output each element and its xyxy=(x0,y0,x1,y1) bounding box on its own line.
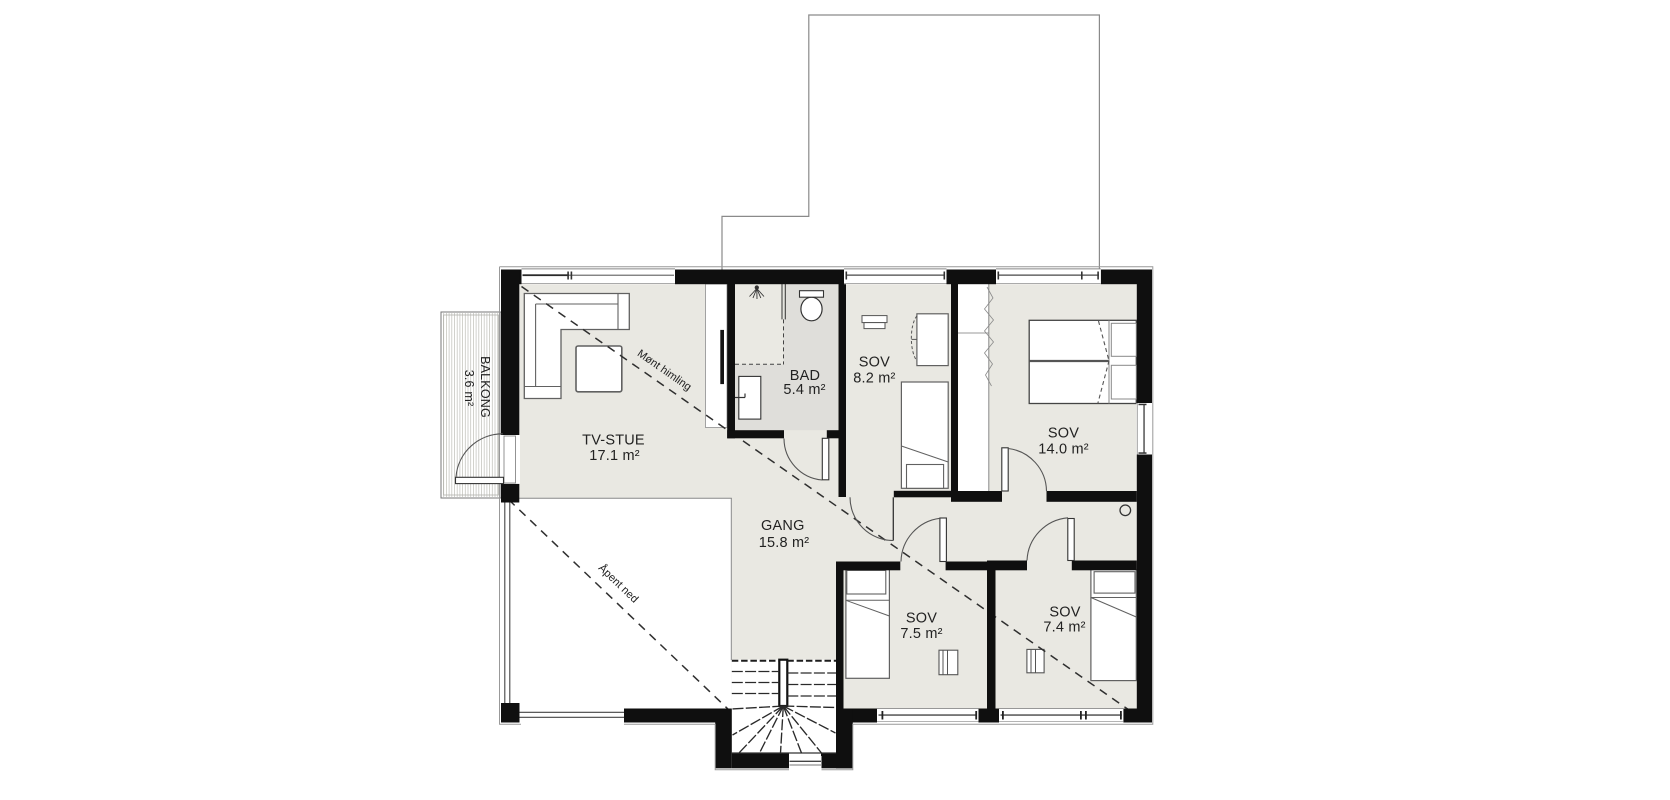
svg-text:8.2 m²: 8.2 m² xyxy=(853,371,895,387)
svg-text:7.4 m²: 7.4 m² xyxy=(1043,620,1085,636)
svg-text:5.4 m²: 5.4 m² xyxy=(783,382,825,398)
svg-text:SOV: SOV xyxy=(1049,605,1080,621)
svg-text:17.1 m²: 17.1 m² xyxy=(589,448,640,464)
svg-text:SOV: SOV xyxy=(906,611,937,627)
svg-text:GANG: GANG xyxy=(761,518,805,534)
svg-text:TV-STUE: TV-STUE xyxy=(582,433,645,449)
svg-text:BALKONG: BALKONG xyxy=(478,356,492,418)
svg-text:3.6 m²: 3.6 m² xyxy=(462,370,476,407)
svg-text:SOV: SOV xyxy=(1048,426,1079,442)
svg-text:7.5 m²: 7.5 m² xyxy=(900,626,942,642)
svg-text:14.0 m²: 14.0 m² xyxy=(1038,441,1089,457)
svg-text:15.8 m²: 15.8 m² xyxy=(759,535,810,551)
svg-text:SOV: SOV xyxy=(859,355,890,371)
